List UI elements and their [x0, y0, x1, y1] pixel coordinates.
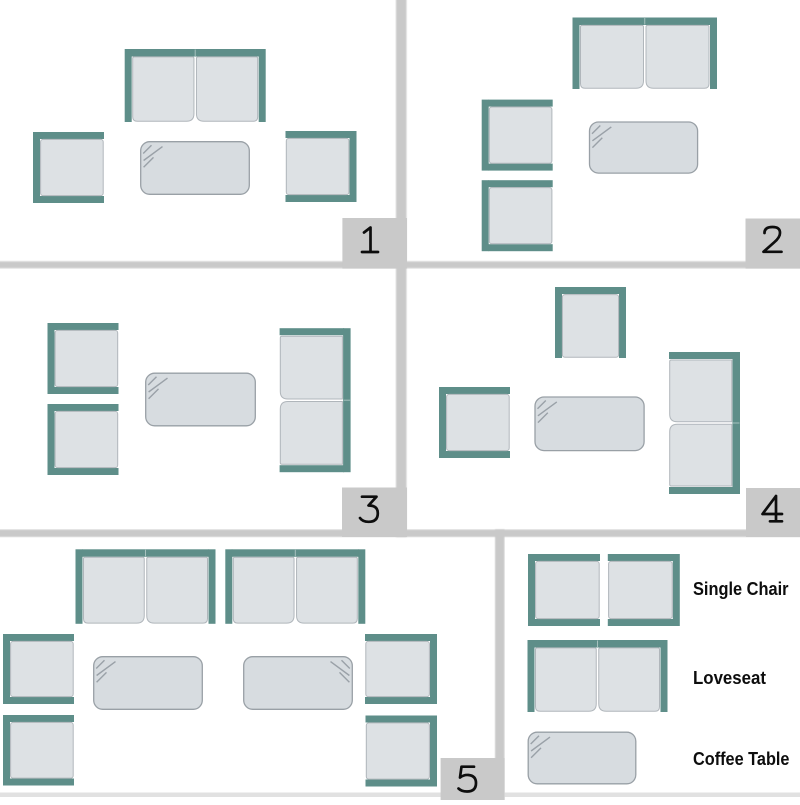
svg-text:Coffee Table: Coffee Table — [693, 748, 790, 769]
svg-text:Single Chair: Single Chair — [693, 578, 789, 599]
svg-text:Loveseat: Loveseat — [693, 667, 766, 688]
